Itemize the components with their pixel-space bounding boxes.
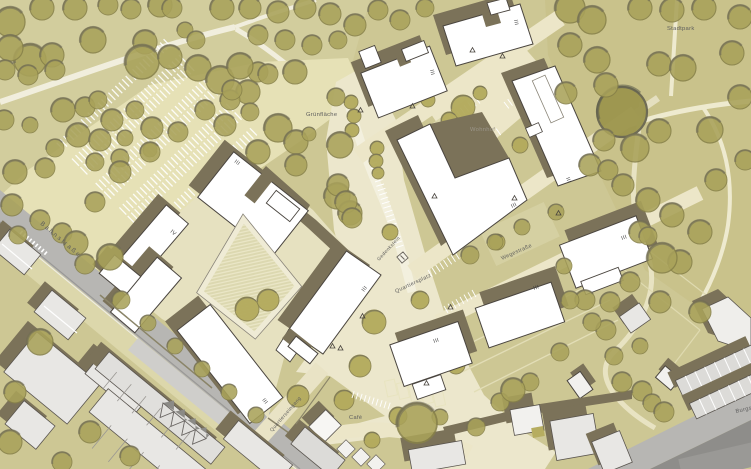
svg-text:Café: Café: [349, 415, 362, 421]
svg-text:Stadtpark: Stadtpark: [667, 26, 695, 32]
svg-text:Grünfläche: Grünfläche: [306, 112, 337, 118]
svg-text:Wohnhof: Wohnhof: [470, 127, 495, 133]
